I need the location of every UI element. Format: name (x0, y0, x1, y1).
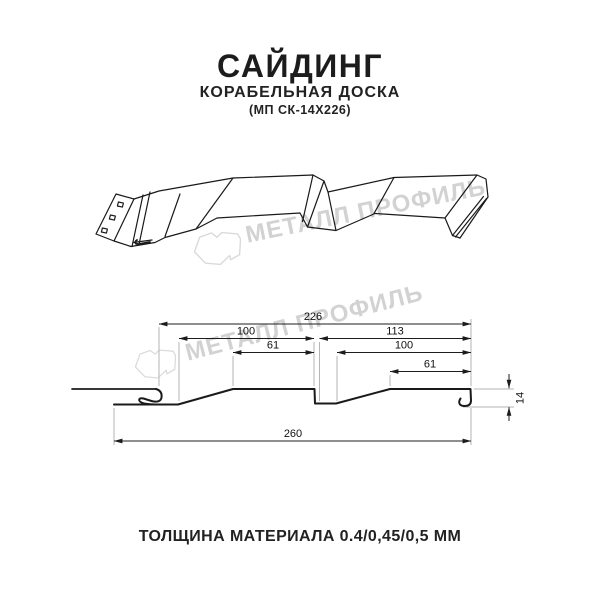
thickness-note: ТОЛЩИНА МАТЕРИАЛА 0.4/0,45/0,5 ММ (0, 528, 600, 546)
dim-board1-width: 100 (237, 326, 255, 338)
profile-cross-section-drawing: 226 100 113 61 100 61 260 14 (55, 300, 535, 460)
section-profile (72, 389, 471, 406)
nail-hole (109, 215, 115, 220)
dim-total-width: 226 (304, 311, 322, 323)
profile-3d-drawing (85, 160, 495, 265)
nail-hole (101, 228, 107, 233)
page-title: САЙДИНГ (0, 48, 600, 85)
extension-lines (114, 319, 514, 445)
dim-profile-height: 14 (515, 392, 527, 404)
dimension-lines (114, 324, 509, 441)
dim-board2-inner: 100 (395, 340, 413, 352)
product-subtitle: КОРАБЕЛЬНАЯ ДОСКА (0, 84, 600, 102)
dim-overall-width: 260 (284, 428, 302, 440)
dim-board2-width: 113 (386, 326, 404, 338)
nail-hole (117, 202, 123, 207)
product-code: (МП СК-14Х226) (0, 103, 600, 117)
dim-board1-flat: 61 (267, 340, 279, 352)
product-drawing-page: САЙДИНГ КОРАБЕЛЬНАЯ ДОСКА (МП СК-14Х226)… (0, 0, 600, 600)
dim-board2-flat: 61 (424, 359, 436, 371)
